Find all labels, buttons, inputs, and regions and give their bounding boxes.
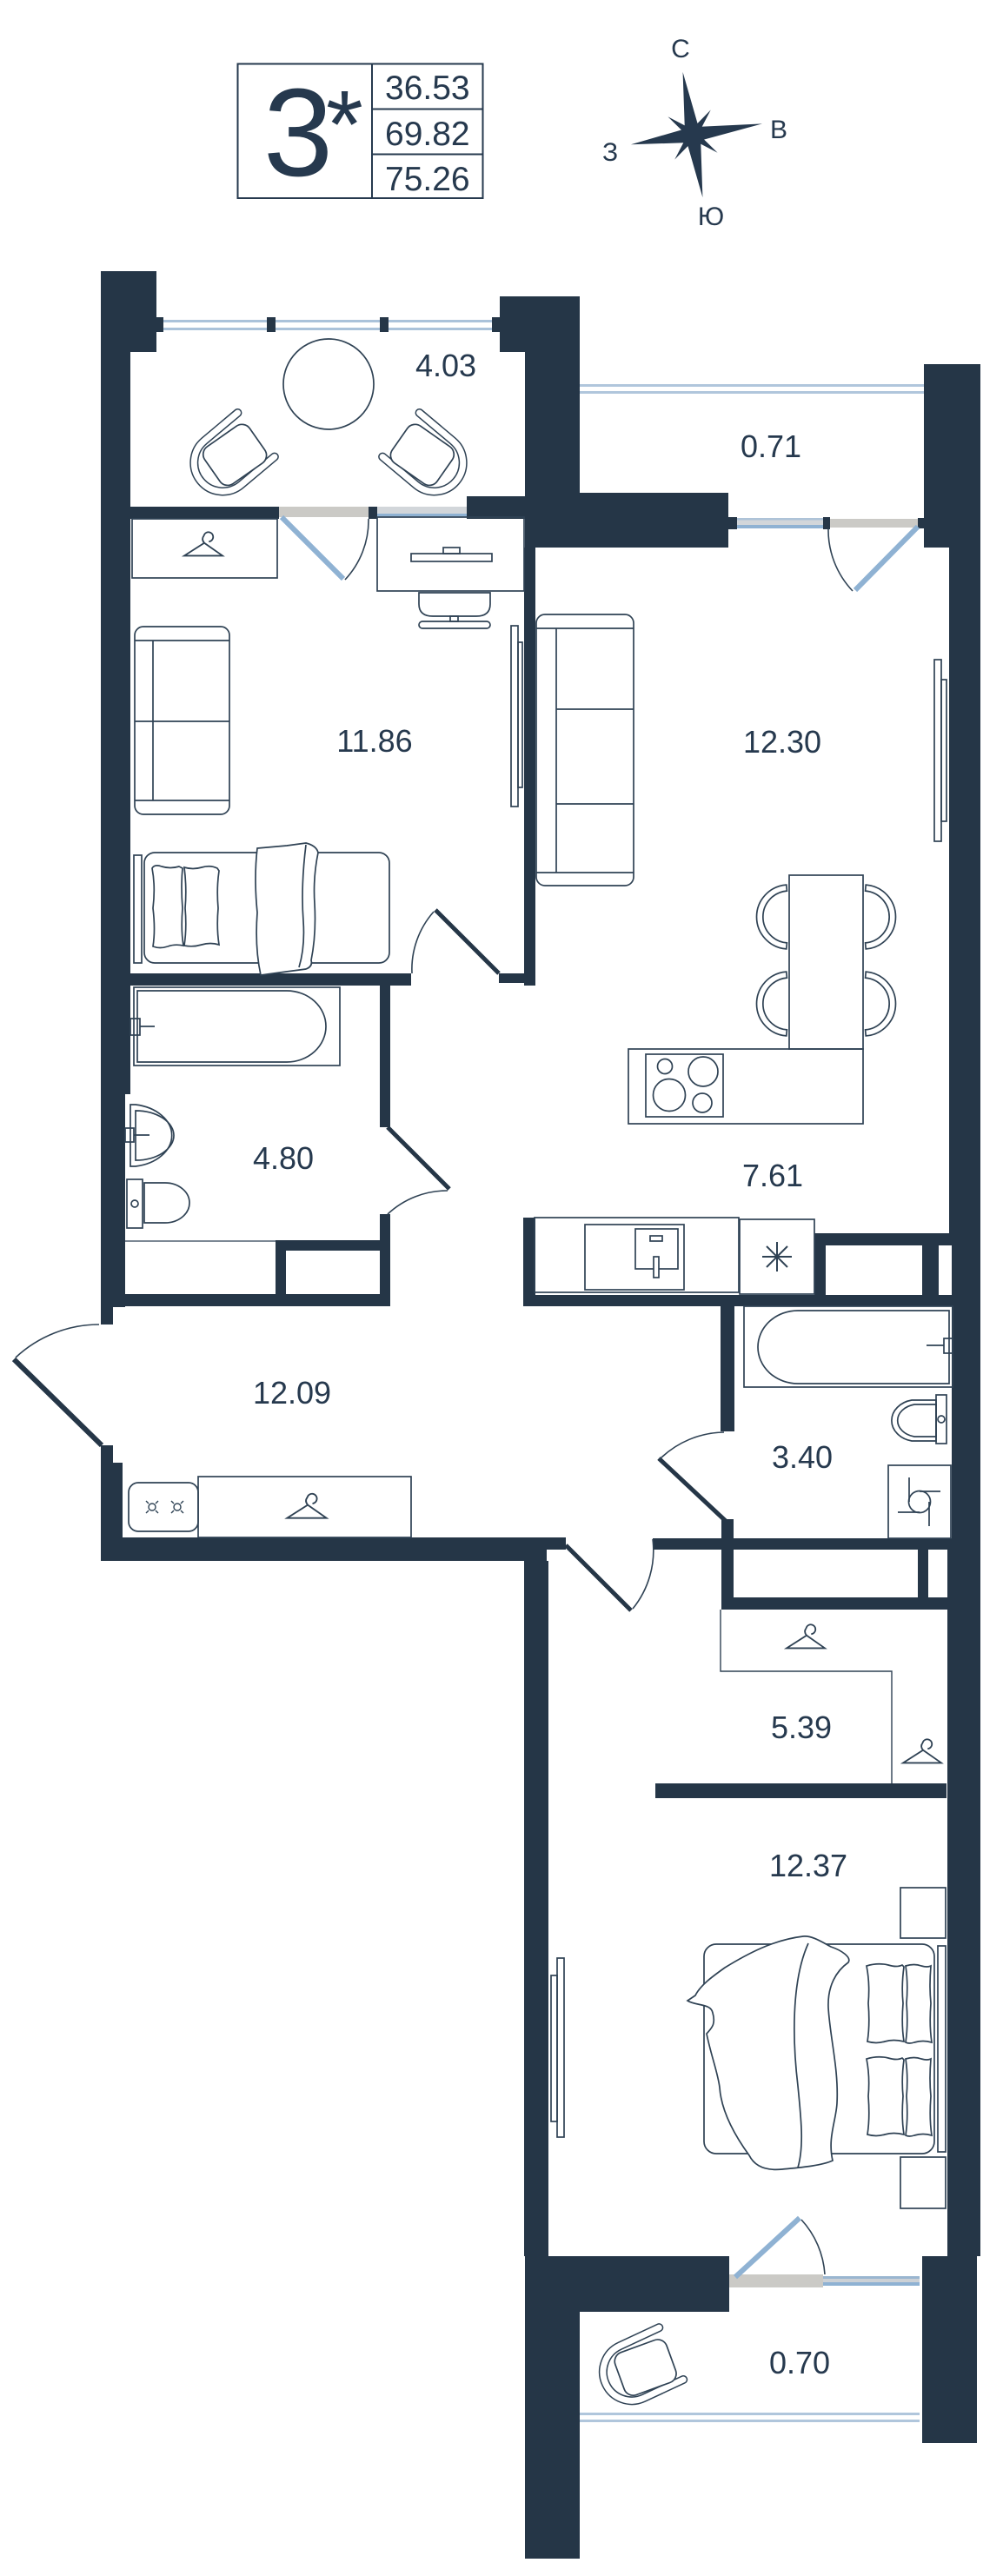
svg-text:12.09: 12.09 [253,1375,331,1411]
svg-text:12.37: 12.37 [769,1848,847,1883]
svg-text:0.70: 0.70 [769,2345,830,2380]
svg-text:*: * [326,71,363,178]
svg-text:3.40: 3.40 [772,1439,833,1475]
svg-text:В: В [770,116,787,144]
svg-text:0.71: 0.71 [741,428,801,464]
svg-text:Ю: Ю [698,202,724,231]
svg-text:12.30: 12.30 [743,724,821,760]
svg-text:3: 3 [263,63,333,202]
svg-text:4.80: 4.80 [253,1140,314,1176]
svg-text:75.26: 75.26 [385,161,470,198]
svg-text:69.82: 69.82 [385,116,470,153]
svg-text:11.86: 11.86 [336,723,412,759]
svg-text:5.39: 5.39 [771,1710,832,1745]
svg-text:4.03: 4.03 [415,348,476,383]
svg-text:36.53: 36.53 [385,70,470,107]
svg-text:С: С [671,35,690,63]
svg-text:З: З [602,138,618,167]
svg-text:7.61: 7.61 [742,1158,803,1193]
